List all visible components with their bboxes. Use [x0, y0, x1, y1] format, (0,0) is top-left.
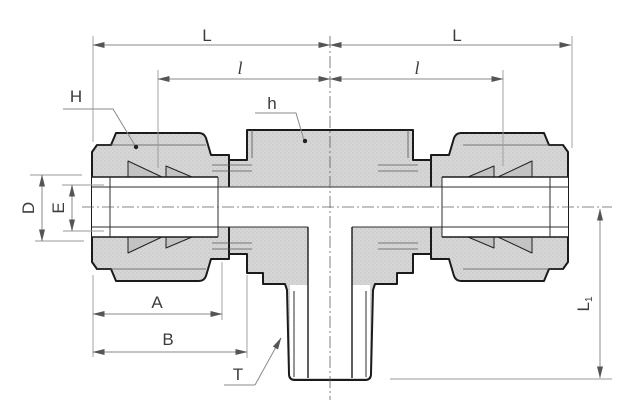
leader-dot-H	[134, 145, 138, 149]
dim-label-L-right: L	[452, 26, 461, 45]
dim-label-L-left: L	[202, 26, 211, 45]
dim-label-D: D	[19, 202, 38, 214]
dim-label-E: E	[49, 202, 68, 213]
dim-label-l-right: l	[414, 58, 419, 78]
tee-fitting-drawing: L L l l H h D E A B T L1	[0, 0, 629, 412]
leader-T	[255, 338, 281, 385]
dim-label-L1-main: L	[574, 302, 593, 311]
leader-dot-h	[303, 139, 307, 143]
dim-label-L1-sub: 1	[584, 296, 595, 302]
dim-label-L1: L1	[574, 296, 595, 311]
dim-label-A: A	[151, 293, 163, 312]
dim-label-h: h	[267, 94, 276, 113]
dim-label-B: B	[162, 330, 173, 349]
dim-label-l-left: l	[237, 58, 242, 78]
dim-label-T: T	[233, 365, 243, 384]
dim-label-H: H	[70, 87, 82, 106]
